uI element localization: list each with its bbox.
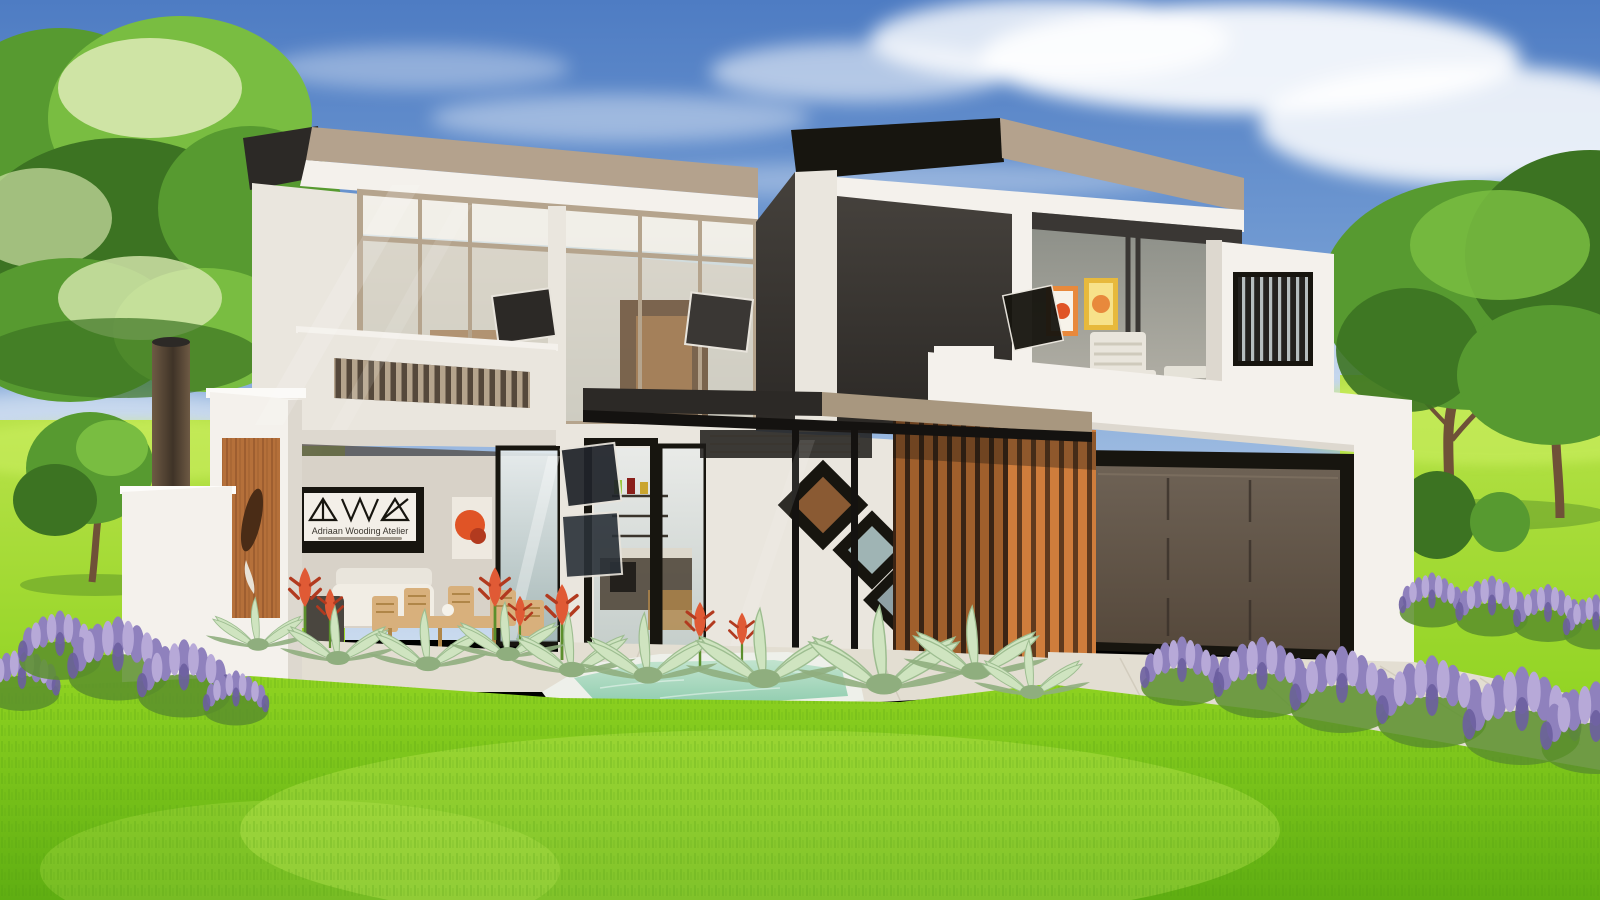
foliage xyxy=(1336,288,1480,412)
scene-canvas: Adriaan Wooding Atelier xyxy=(0,0,1600,900)
studio-sign: Adriaan Wooding Atelier xyxy=(296,487,424,553)
garage-right-pier xyxy=(1354,444,1414,684)
foliage-highlight xyxy=(58,38,242,138)
open-window-pane xyxy=(685,292,753,351)
shrub xyxy=(1470,492,1530,552)
artwork-motif-dark xyxy=(470,528,486,544)
open-window-pane xyxy=(1003,285,1064,350)
open-window-pane xyxy=(562,512,622,578)
timber-slat-screens xyxy=(893,420,1096,692)
shelf-item-red xyxy=(627,478,635,494)
garage-door xyxy=(1096,466,1340,650)
foliage xyxy=(13,464,97,536)
foliage-highlight xyxy=(1410,190,1590,300)
cloud xyxy=(710,42,1010,102)
garage xyxy=(1040,442,1414,684)
artwork-yellow-motif xyxy=(1092,295,1110,313)
architectural-render: Adriaan Wooding Atelier xyxy=(0,0,1600,900)
foliage-highlight xyxy=(76,420,148,476)
shelf-item-yellow xyxy=(640,482,648,494)
open-window-pane xyxy=(561,443,622,507)
canopy-post xyxy=(851,426,858,682)
cloud-wisp xyxy=(430,94,810,142)
louver-window-slats xyxy=(1238,277,1308,361)
patio-artwork-red xyxy=(452,497,492,559)
cloud-wisp xyxy=(270,46,570,90)
chimney-top xyxy=(152,337,190,347)
sign-studio-name: Adriaan Wooding Atelier xyxy=(312,526,408,536)
dining-table xyxy=(380,616,504,628)
open-window-pane xyxy=(492,288,556,344)
table-jug xyxy=(442,604,454,616)
signage-tagline-illegible xyxy=(318,537,402,540)
